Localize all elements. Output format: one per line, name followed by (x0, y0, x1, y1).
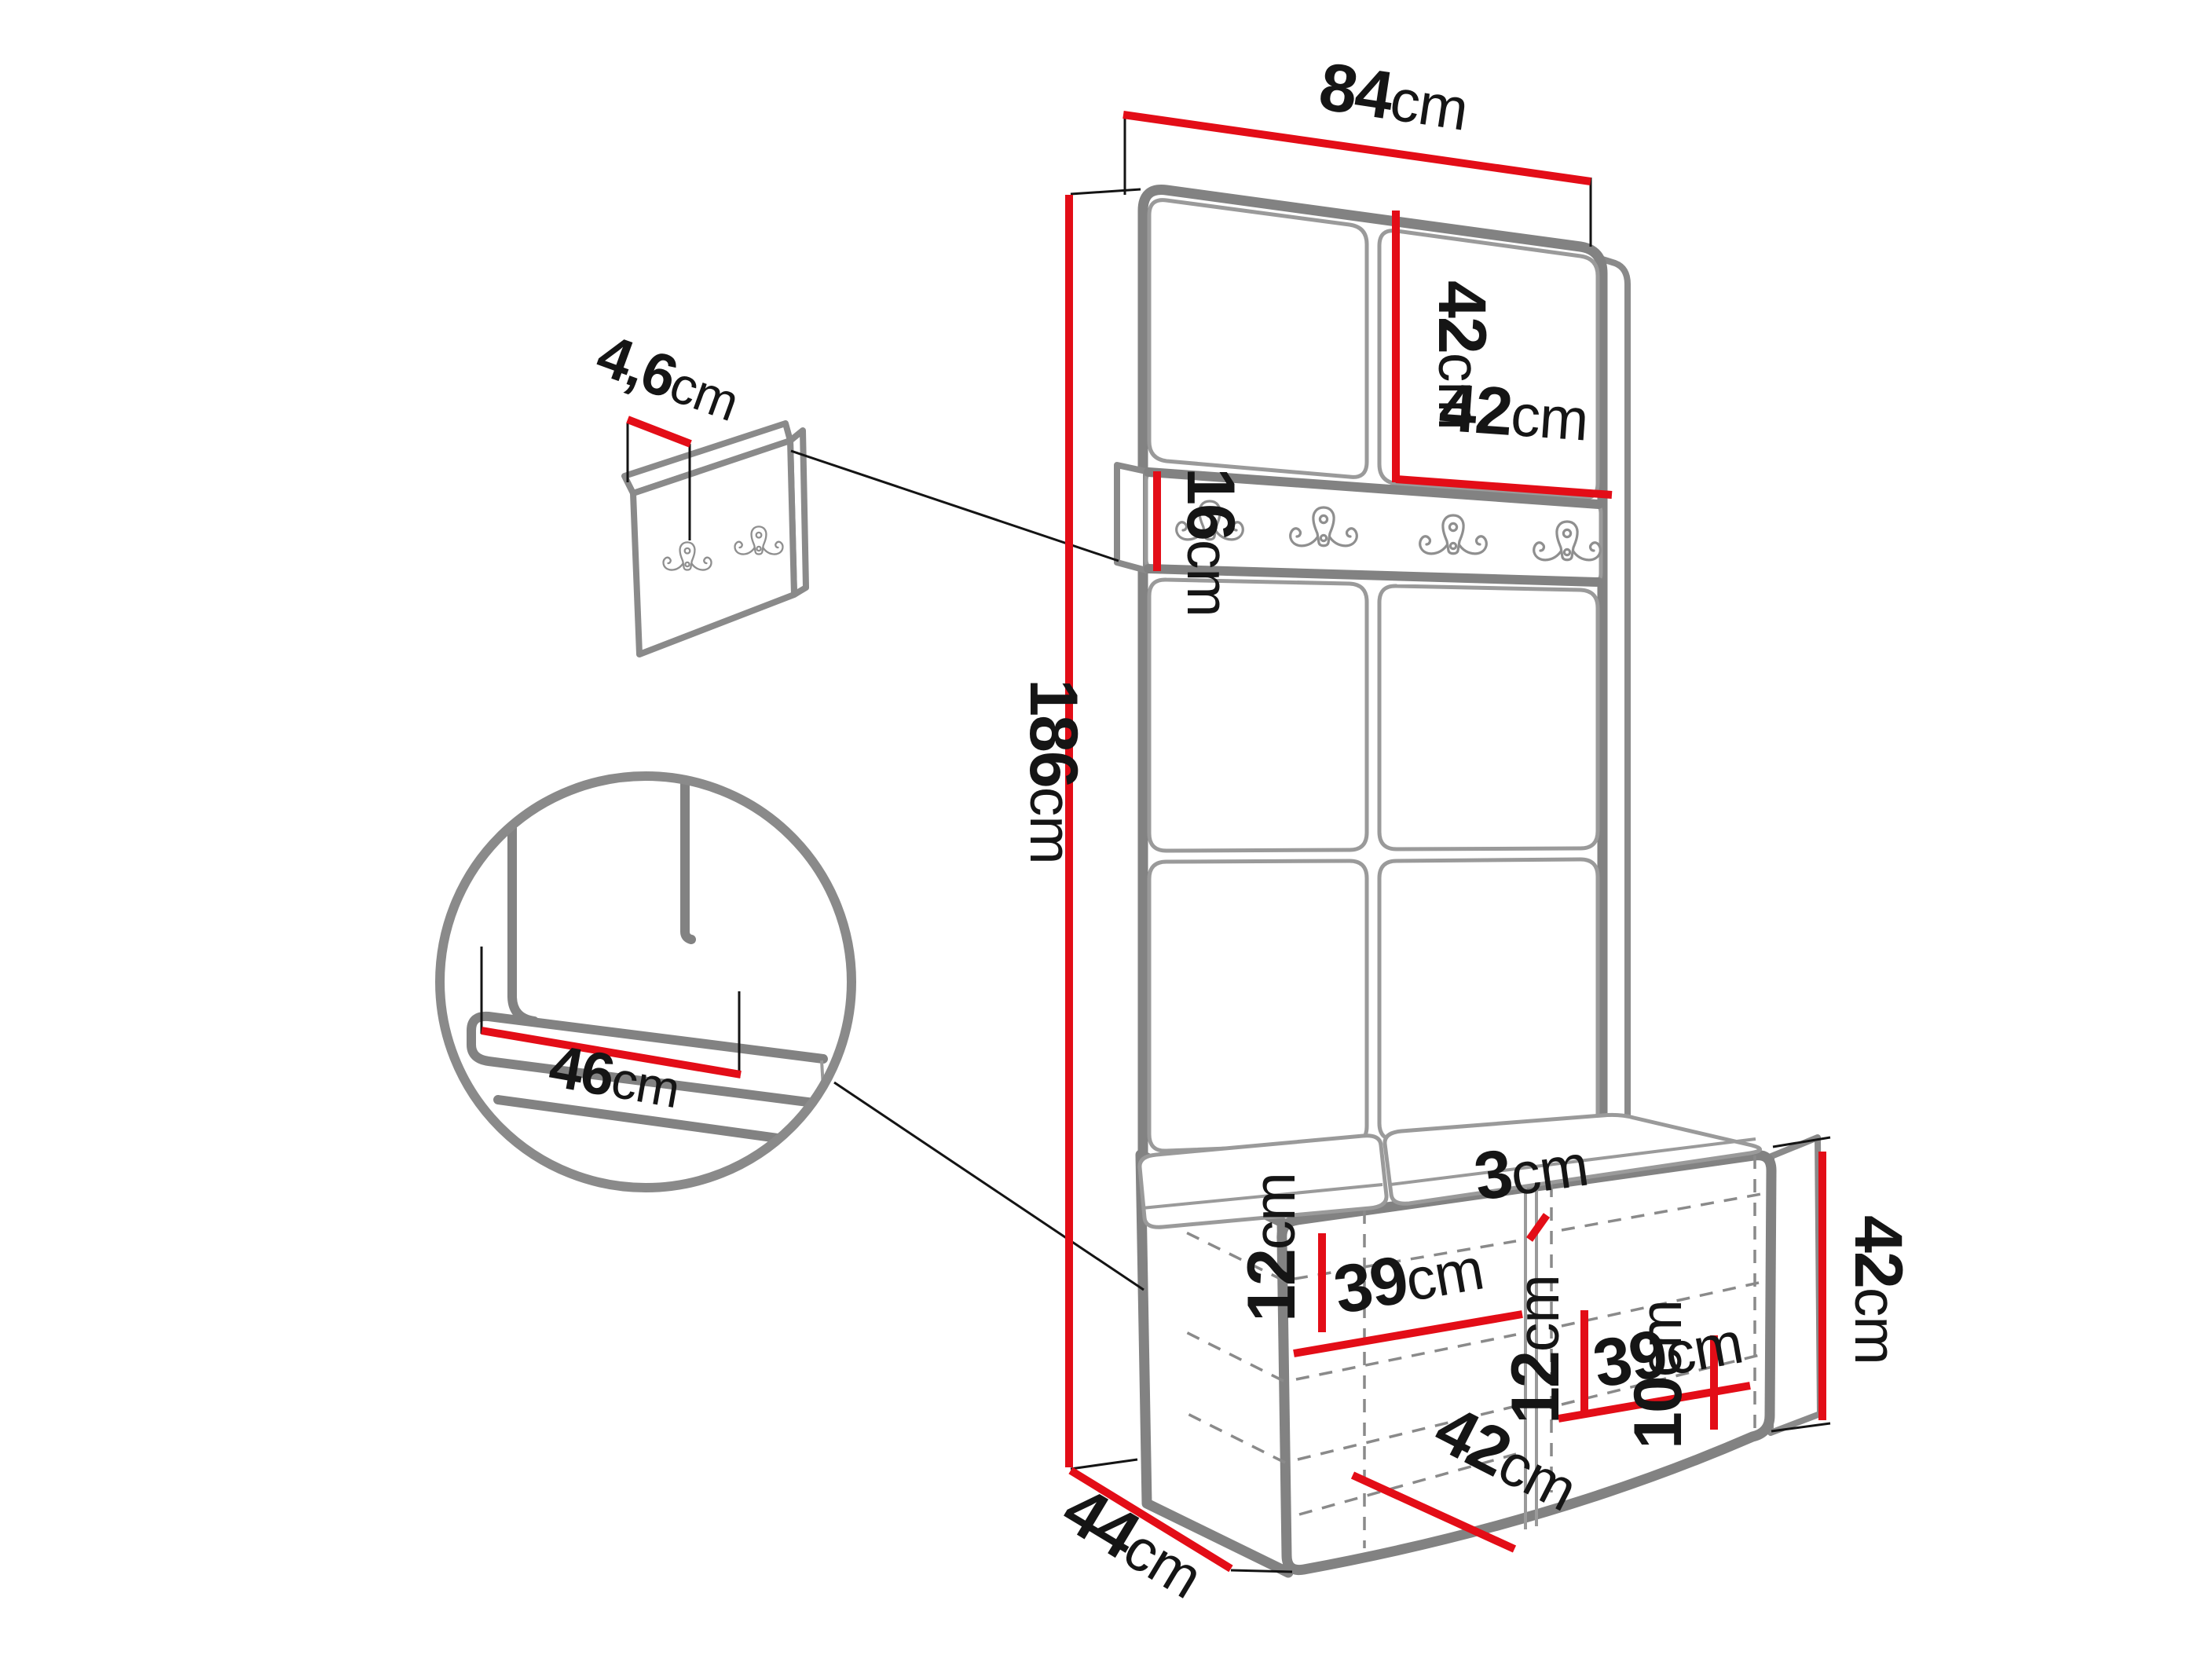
label-bench-height: 42cm (1840, 1215, 1916, 1364)
grid-panel-top-left (1149, 580, 1367, 851)
grid-panel-bottom-right (1379, 859, 1598, 1140)
ext-44-right (1231, 1570, 1292, 1572)
grid-panel-top-right (1379, 586, 1598, 849)
bench-right-side-face (1771, 1137, 1820, 1433)
detail-circle-connector-line (834, 1082, 1144, 1290)
ext-44-left (1071, 1459, 1137, 1469)
wall-hook-panel (624, 423, 1119, 654)
ext-186-top (1071, 189, 1141, 194)
label-bench-right-offset: 12cm (1498, 1275, 1573, 1424)
diagram-canvas: 84cm 42cm 42cm 16cm 186cm 4,6cm 46cm 12c… (0, 0, 2212, 1659)
main-unit (1117, 190, 1628, 1156)
label-bench-left-offset: 12cm (1234, 1173, 1309, 1322)
label-bench-bottom-offset: 10cm (1621, 1300, 1696, 1449)
dim-line-46mm (628, 419, 690, 444)
furniture-dimension-diagram: 84cm 42cm 42cm 16cm 186cm 4,6cm 46cm 12c… (0, 0, 2212, 1659)
label-unit-width: 84cm (1314, 49, 1473, 145)
grid-panel-bottom-left (1149, 861, 1367, 1151)
label-hook-rail-height: 16cm (1173, 467, 1248, 617)
label-unit-height: 186cm (1016, 679, 1091, 863)
hook-rail-side-face (1117, 465, 1146, 570)
upper-panel-left (1149, 200, 1367, 478)
label-wall-panel-thickness: 4,6cm (588, 321, 749, 434)
